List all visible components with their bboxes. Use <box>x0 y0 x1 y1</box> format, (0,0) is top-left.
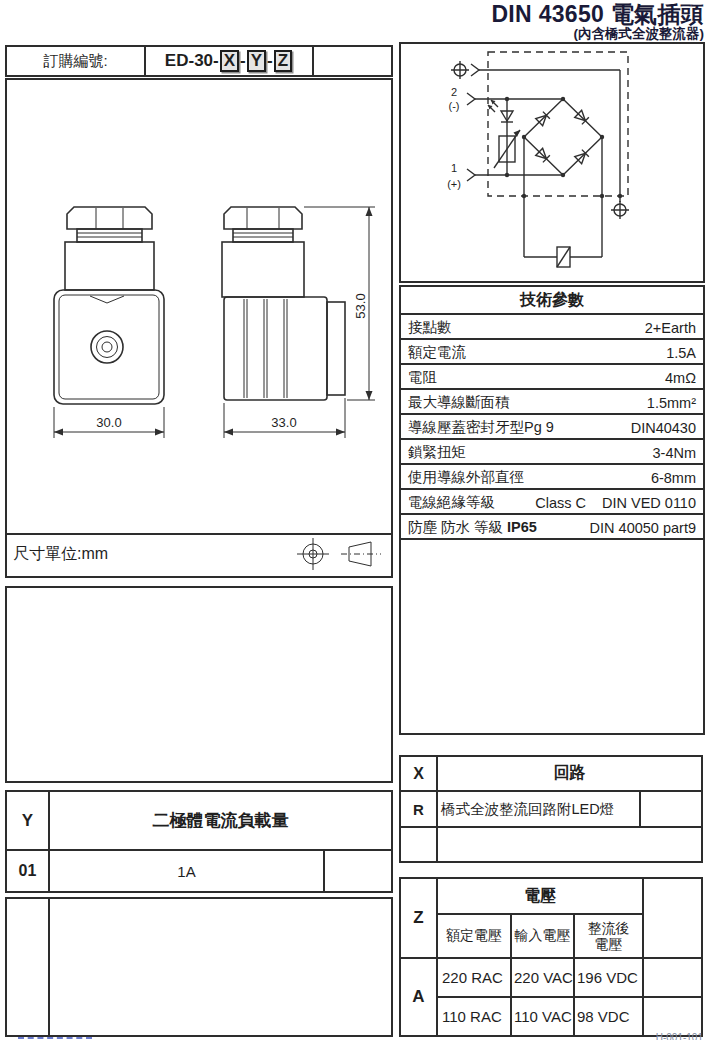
z-r2c2: 110 VAC <box>512 998 573 1035</box>
param-label: 防塵 防水 等級 IP65 <box>408 518 590 537</box>
param-value: 4mΩ <box>665 370 696 386</box>
unit-label: 尺寸單位:mm <box>13 535 213 574</box>
crosshair-projection-icon <box>297 538 329 570</box>
param-label-bold: IP65 <box>507 519 537 535</box>
dim-side-width: 33.0 <box>271 415 296 430</box>
projection-symbols <box>293 535 385 574</box>
order-code-x: X <box>220 50 239 72</box>
order-code-sep1: - <box>240 51 246 71</box>
tech-row: 接點數2+Earth <box>401 315 703 340</box>
terminal2-number: 2 <box>451 86 457 98</box>
tech-row: 電阻4mΩ <box>401 365 703 390</box>
solenoid-load <box>524 137 602 267</box>
order-code: ED-30-X-Y-Z <box>146 47 312 75</box>
param-label: 使用導線外部直徑 <box>408 468 651 487</box>
z-r2c1: 110 RAC <box>438 998 510 1035</box>
param-label: 接點數 <box>408 318 645 337</box>
circuit-diagram-box: 2 (-) 1 (+) <box>399 42 705 283</box>
junction-dots <box>505 97 622 198</box>
order-code-z: Z <box>274 50 292 72</box>
x-row-code: R <box>401 792 436 826</box>
unit-row: 尺寸單位:mm <box>5 535 393 578</box>
body-side <box>224 297 327 400</box>
terminal2-chevron <box>467 93 475 105</box>
tech-params-header: 技術參數 <box>401 287 703 313</box>
y-header: 二極體電流負載量 <box>50 792 391 849</box>
z-r2c3: 98 VDC <box>575 998 642 1035</box>
param-value: DIN VED 0110 <box>602 495 696 511</box>
tech-row: 使用導線外部直徑6-8mm <box>401 465 703 490</box>
order-code-prefix: ED-30- <box>165 51 219 71</box>
param-value: DIN40430 <box>631 420 696 436</box>
x-row-desc: 橋式全波整流回路附LED燈 <box>438 792 639 826</box>
cone-projection-icon <box>341 542 381 566</box>
page-title: DIN 43650 電氣插頭 <box>491 2 704 27</box>
param-value: 3-4Nm <box>652 445 696 461</box>
tech-row: 鎖緊扭矩3-4Nm <box>401 440 703 465</box>
gland-neck-side <box>222 242 304 297</box>
datasheet-page: DIN 43650 電氣插頭 (內含橋式全波整流器) 訂購編號: ED-30-X… <box>0 0 707 1040</box>
empty-panel-left <box>5 586 393 783</box>
param-value: 6-8mm <box>651 470 696 486</box>
order-code-y: Y <box>247 50 266 72</box>
x-code: X <box>401 757 436 790</box>
footer-left-fragment <box>18 1037 92 1039</box>
led-varistor-branch <box>488 99 520 175</box>
param-mid-value: Class C <box>535 495 586 511</box>
tech-row: 額定電流1.5A <box>401 340 703 365</box>
terminal1-number: 1 <box>451 162 457 174</box>
param-value: 2+Earth <box>645 320 696 336</box>
tech-row: 導線壓蓋密封牙型Pg 9DIN40430 <box>401 415 703 440</box>
z-r1c2: 220 VAC <box>512 959 573 996</box>
tech-row: 電線絕緣等級Class CDIN VED 0110 <box>401 490 703 515</box>
dim-height: 53.0 <box>353 293 368 318</box>
z-col-rectified: 整流後電壓 <box>575 915 642 957</box>
body-front <box>54 290 164 404</box>
earth-terminal-bottom <box>611 201 629 219</box>
z-col-rated: 額定電壓 <box>438 915 510 957</box>
front-view: 30.0 <box>54 207 164 438</box>
footer-doc-number: H-001-101 <box>656 1032 703 1040</box>
order-code-sep2: - <box>267 51 273 71</box>
side-view: 33.0 53.0 <box>222 207 375 438</box>
y-row-code: 01 <box>7 851 48 891</box>
z-header: 電壓 <box>438 879 642 913</box>
empty-panel-bottom-left <box>5 897 393 1037</box>
gland-neck-front <box>65 242 154 290</box>
param-label: 電阻 <box>408 368 665 387</box>
z-r1c1: 220 RAC <box>438 959 510 996</box>
bridge-rectifier-circuit: 2 (-) 1 (+) <box>401 44 703 281</box>
center-screw <box>91 331 123 363</box>
param-label: 最大導線斷面積 <box>408 393 647 412</box>
page-title-block: DIN 43650 電氣插頭 (內含橋式全波整流器) <box>491 2 704 41</box>
page-subtitle: (內含橋式全波整流器) <box>491 27 704 42</box>
param-label: 導線壓蓋密封牙型Pg 9 <box>408 418 631 437</box>
z-code: Z <box>401 879 436 957</box>
order-label: 訂購編號: <box>7 47 144 75</box>
x-header: 回路 <box>438 757 701 790</box>
tech-row: 防塵 防水 等級 IP65DIN 40050 part9 <box>401 515 703 540</box>
z-col-input: 輸入電壓 <box>512 915 573 957</box>
flange-side <box>327 302 345 395</box>
diode-bridge <box>524 99 602 175</box>
hex-nut-front <box>67 207 152 229</box>
tech-params-table: 技術參數 接點數2+Earth 額定電流1.5A 電阻4mΩ 最大導線斷面積1.… <box>399 285 705 735</box>
param-value: 1.5A <box>666 345 696 361</box>
z-voltage-table: Z 電壓 額定電壓 輸入電壓 整流後電壓 A 220 RAC 220 VAC 1… <box>399 877 703 1037</box>
z-row-code: A <box>401 959 436 1035</box>
y-code: Y <box>7 792 48 849</box>
param-label: 額定電流 <box>408 343 666 362</box>
terminal2-sign: (-) <box>449 100 460 112</box>
x-option-table: X 回路 R 橋式全波整流回路附LED燈 <box>399 755 703 863</box>
y-row-value: 1A <box>50 851 323 891</box>
hex-nut-side <box>224 207 302 229</box>
order-number-box: 訂購編號: ED-30-X-Y-Z <box>5 45 393 77</box>
tech-row: 最大導線斷面積1.5mm² <box>401 390 703 415</box>
terminal1-sign: (+) <box>447 178 461 190</box>
param-label: 鎖緊扭矩 <box>408 443 652 462</box>
connector-drawing: 30.0 33.0 53.0 <box>7 80 391 533</box>
z-r1c3: 196 VDC <box>575 959 642 996</box>
earth-terminal-top <box>451 61 479 79</box>
dim-front-width: 30.0 <box>96 415 121 430</box>
param-value: 1.5mm² <box>647 395 696 411</box>
y-option-table: Y 二極體電流負載量 01 1A <box>5 790 393 893</box>
param-value: DIN 40050 part9 <box>590 520 696 536</box>
terminal1-chevron <box>467 169 475 181</box>
divider <box>312 47 314 75</box>
technical-drawing-box: 30.0 33.0 53.0 <box>5 78 393 535</box>
param-label: 電線絕緣等級 <box>408 493 535 512</box>
